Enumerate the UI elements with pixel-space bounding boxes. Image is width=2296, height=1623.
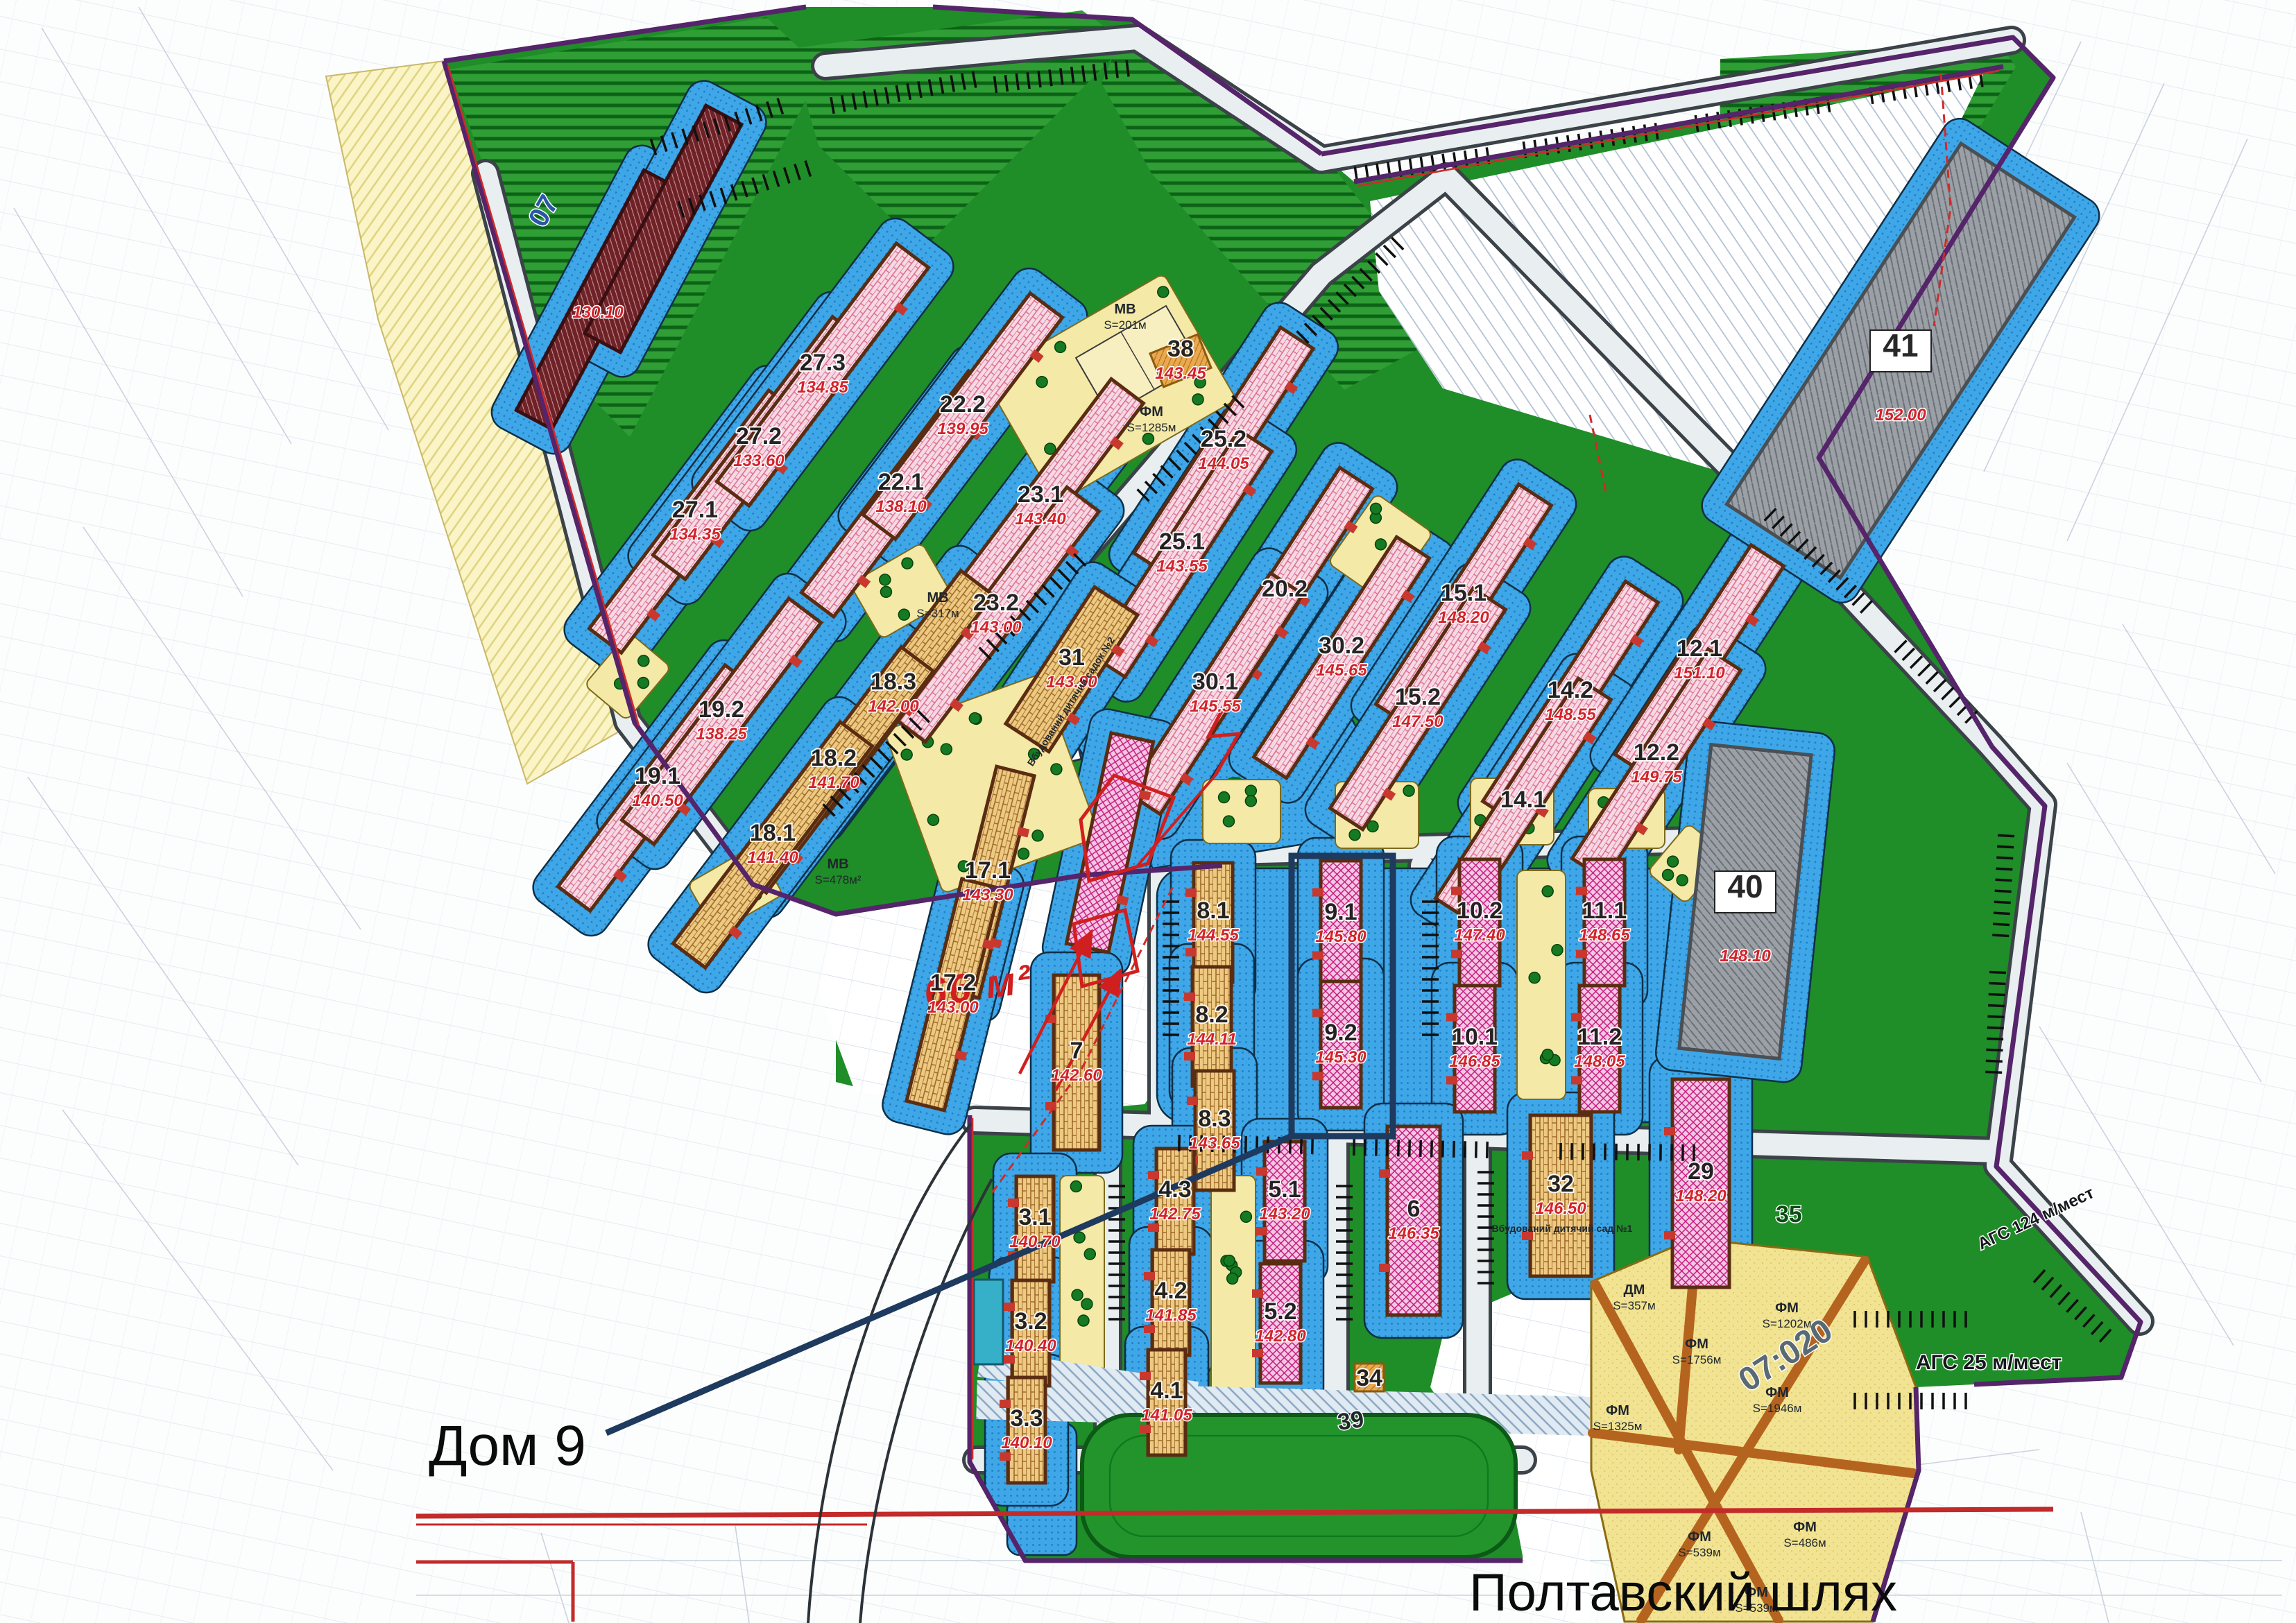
entrance-mark <box>1008 1199 1019 1207</box>
entrance-mark <box>1446 1013 1457 1022</box>
playground <box>1517 870 1566 1099</box>
svg-text:4.1: 4.1 <box>1150 1377 1183 1404</box>
svg-text:134.85: 134.85 <box>797 378 848 397</box>
entrance-mark <box>1571 1013 1582 1022</box>
svg-text:147.50: 147.50 <box>1392 712 1443 731</box>
svg-text:142.75: 142.75 <box>1149 1205 1201 1223</box>
svg-text:3.2: 3.2 <box>1014 1308 1047 1334</box>
svg-text:ФМ: ФМ <box>1793 1520 1817 1535</box>
svg-text:18.3: 18.3 <box>871 669 916 695</box>
building-label-22.1: 22.1138.10 <box>875 469 927 516</box>
svg-text:11.1: 11.1 <box>1582 898 1627 924</box>
svg-text:138.10: 138.10 <box>875 497 927 516</box>
entrance-mark <box>1144 1272 1155 1280</box>
svg-text:S=539м: S=539м <box>1678 1546 1720 1559</box>
svg-text:146.85: 146.85 <box>1449 1052 1500 1071</box>
svg-text:145.30: 145.30 <box>1315 1048 1367 1067</box>
building-label-15.1: 15.1148.20 <box>1438 580 1489 627</box>
building-label-23.2: 23.2143.00 <box>970 590 1022 637</box>
svg-text:145.65: 145.65 <box>1316 661 1367 680</box>
entrance-mark <box>1451 950 1462 959</box>
svg-text:143.20: 143.20 <box>1259 1205 1310 1223</box>
entrance-mark <box>1379 1169 1390 1178</box>
svg-text:27.2: 27.2 <box>736 423 782 449</box>
entrance-mark <box>1148 1223 1159 1232</box>
svg-text:148.55: 148.55 <box>1545 705 1596 724</box>
svg-text:19.2: 19.2 <box>699 696 744 723</box>
entrance-mark <box>1451 887 1462 895</box>
building-label-18.1: 18.1141.40 <box>747 820 798 867</box>
entrance-mark <box>1664 1127 1675 1135</box>
entrance-mark <box>1379 1264 1390 1272</box>
playground <box>1211 1176 1256 1405</box>
entrance-mark <box>1664 1231 1675 1239</box>
svg-text:14.2: 14.2 <box>1548 677 1593 703</box>
entrance-mark <box>1252 1289 1263 1298</box>
entrance-mark <box>1000 1400 1011 1408</box>
svg-text:МВ: МВ <box>927 590 948 606</box>
svg-text:148.05: 148.05 <box>1574 1052 1625 1071</box>
svg-text:17.1: 17.1 <box>965 857 1011 884</box>
svg-text:4.3: 4.3 <box>1158 1176 1191 1203</box>
svg-text:141.70: 141.70 <box>808 773 859 792</box>
entrance-mark <box>1256 1227 1267 1235</box>
svg-text:S=478м²: S=478м² <box>815 873 862 886</box>
svg-text:146.35: 146.35 <box>1388 1224 1439 1243</box>
svg-text:148.10: 148.10 <box>1720 947 1771 965</box>
entrance-mark <box>1045 1102 1056 1110</box>
svg-text:ФМ: ФМ <box>1685 1337 1708 1352</box>
playground <box>1203 780 1280 843</box>
svg-text:32: 32 <box>1548 1171 1574 1197</box>
building-label-18.2: 18.2141.70 <box>808 745 859 792</box>
svg-text:148.65: 148.65 <box>1579 926 1630 945</box>
building-label-12.2: 12.2149.75 <box>1631 739 1682 787</box>
entrance-mark <box>1148 1171 1159 1179</box>
building-label-15.2: 15.2147.50 <box>1392 684 1443 731</box>
svg-text:138.25: 138.25 <box>696 725 747 744</box>
svg-text:ФМ: ФМ <box>1606 1403 1629 1418</box>
svg-text:23.1: 23.1 <box>1018 481 1063 508</box>
svg-text:31: 31 <box>1059 644 1085 671</box>
building-label-19.1: 19.1140.50 <box>632 763 683 810</box>
building-note: Вбудований дитячий сад №1 <box>1492 1223 1633 1234</box>
svg-text:ФМ: ФМ <box>1775 1300 1799 1316</box>
svg-text:18.1: 18.1 <box>750 820 796 846</box>
svg-text:143.00: 143.00 <box>927 998 979 1017</box>
svg-text:27.3: 27.3 <box>800 350 846 376</box>
building-label-30.1: 30.1145.55 <box>1190 669 1241 716</box>
svg-text:22.1: 22.1 <box>878 469 924 495</box>
entrance-mark <box>1256 1167 1267 1176</box>
svg-text:ДМ: ДМ <box>1624 1282 1645 1298</box>
svg-text:142.80: 142.80 <box>1255 1327 1306 1346</box>
svg-text:143.45: 143.45 <box>1155 364 1206 383</box>
svg-text:5.1: 5.1 <box>1268 1176 1301 1203</box>
svg-text:27.1: 27.1 <box>672 497 718 523</box>
entrance-mark <box>1576 887 1587 895</box>
building-label-11.2: 11.2148.05 <box>1574 1024 1625 1071</box>
entrance-mark <box>1576 950 1587 959</box>
svg-text:S=1202м: S=1202м <box>1763 1317 1812 1330</box>
svg-text:12.2: 12.2 <box>1634 739 1679 766</box>
svg-text:151.10: 151.10 <box>1674 664 1725 682</box>
svg-text:3.3: 3.3 <box>1010 1405 1043 1432</box>
entrance-mark <box>1522 1151 1533 1160</box>
map-label: АГС 25 м/мест <box>1916 1351 2062 1374</box>
svg-text:152.00: 152.00 <box>1875 406 1926 424</box>
svg-text:141.85: 141.85 <box>1145 1306 1197 1325</box>
building-label-23.1: 23.1143.40 <box>1015 481 1066 529</box>
svg-text:149.75: 149.75 <box>1631 768 1682 787</box>
svg-text:МВ: МВ <box>827 857 848 872</box>
building-label: 130.10 <box>572 303 624 322</box>
svg-text:8.2: 8.2 <box>1195 1002 1228 1028</box>
svg-text:34: 34 <box>1356 1365 1382 1391</box>
svg-text:ФМ: ФМ <box>1765 1385 1789 1400</box>
svg-text:140.70: 140.70 <box>1009 1233 1061 1251</box>
building-label-14.1: 14.1 <box>1500 787 1546 813</box>
entrance-mark <box>1144 1325 1155 1333</box>
building-label-17.2: 17.2143.00 <box>927 970 979 1017</box>
svg-text:30.1: 30.1 <box>1192 669 1238 695</box>
svg-text:40: 40 <box>1727 868 1763 904</box>
svg-text:9.1: 9.1 <box>1324 899 1357 925</box>
svg-text:140.50: 140.50 <box>632 791 683 810</box>
svg-text:11.2: 11.2 <box>1577 1024 1622 1050</box>
svg-text:142.00: 142.00 <box>868 697 919 716</box>
svg-text:S=1946м: S=1946м <box>1753 1402 1802 1415</box>
building-label-12.1: 12.1151.10 <box>1674 635 1725 682</box>
svg-text:29: 29 <box>1688 1158 1714 1185</box>
svg-text:S=1285м: S=1285м <box>1127 421 1176 434</box>
svg-text:142.60: 142.60 <box>1051 1066 1102 1085</box>
building-label-20.2: 20.2 <box>1262 576 1308 602</box>
building-label-11.1: 11.1148.65 <box>1579 898 1630 945</box>
building-label-27.3: 27.3134.85 <box>797 350 848 397</box>
svg-text:41: 41 <box>1883 327 1918 363</box>
svg-text:140.10: 140.10 <box>1001 1434 1052 1452</box>
svg-text:23.2: 23.2 <box>973 590 1019 616</box>
entrance-mark <box>1184 993 1195 1001</box>
svg-text:8.1: 8.1 <box>1197 898 1229 924</box>
svg-text:143.65: 143.65 <box>1189 1134 1240 1153</box>
entrance-mark <box>1446 1076 1457 1085</box>
dom9-label: Дом 9 <box>429 1414 586 1477</box>
svg-text:146.50: 146.50 <box>1535 1199 1586 1218</box>
svg-text:S=1756м: S=1756м <box>1672 1353 1722 1366</box>
svg-text:133.60: 133.60 <box>733 452 785 470</box>
svg-text:145.55: 145.55 <box>1190 697 1241 716</box>
entrance-mark <box>1000 1452 1011 1461</box>
entrance-mark <box>1312 952 1323 960</box>
svg-text:25.2: 25.2 <box>1201 426 1246 452</box>
svg-text:9.2: 9.2 <box>1324 1020 1357 1046</box>
svg-text:38: 38 <box>1167 336 1194 362</box>
svg-text:144.05: 144.05 <box>1198 454 1249 473</box>
svg-text:S=357м: S=357м <box>1613 1299 1655 1312</box>
map-label: 35 <box>1776 1201 1802 1228</box>
svg-text:20.2: 20.2 <box>1262 576 1308 602</box>
svg-text:141.05: 141.05 <box>1141 1406 1192 1425</box>
entrance-mark <box>1252 1349 1263 1357</box>
building-label-27.1: 27.1134.35 <box>669 497 721 544</box>
entrance-mark <box>1185 888 1197 897</box>
svg-text:ФМ: ФМ <box>1140 404 1163 420</box>
svg-text:140.40: 140.40 <box>1005 1337 1056 1355</box>
svg-text:3.1: 3.1 <box>1018 1204 1051 1230</box>
svg-text:15.1: 15.1 <box>1441 580 1487 606</box>
building-label-10.1: 10.1146.85 <box>1449 1024 1500 1071</box>
svg-text:143.00: 143.00 <box>970 618 1022 637</box>
building-label-19.2: 19.2138.25 <box>696 696 747 744</box>
entrance-mark <box>1312 1009 1323 1017</box>
svg-text:МВ: МВ <box>1114 302 1136 317</box>
entrance-mark <box>1140 1372 1151 1380</box>
entrance-mark <box>1004 1355 1015 1364</box>
svg-text:145.80: 145.80 <box>1315 927 1367 946</box>
entrance-mark <box>1185 948 1197 956</box>
svg-text:S=317м: S=317м <box>916 607 959 620</box>
svg-text:12.1: 12.1 <box>1677 635 1722 662</box>
entrance-mark <box>1312 888 1323 897</box>
svg-text:147.40: 147.40 <box>1454 926 1505 945</box>
svg-text:ФМ: ФМ <box>1688 1529 1711 1545</box>
svg-text:25.1: 25.1 <box>1159 529 1205 555</box>
svg-text:134.35: 134.35 <box>669 525 721 544</box>
svg-text:17.2: 17.2 <box>930 970 976 996</box>
entrance-mark <box>1184 1052 1195 1060</box>
building-label-30.2: 30.2145.65 <box>1316 633 1367 680</box>
svg-text:7: 7 <box>1070 1038 1083 1064</box>
building-label-10.2: 10.2147.40 <box>1454 898 1505 945</box>
pool-building <box>974 1280 1003 1364</box>
street-label: Полтавский шлях <box>1469 1563 1897 1622</box>
svg-text:141.40: 141.40 <box>747 848 798 867</box>
svg-text:143.40: 143.40 <box>1015 510 1066 529</box>
svg-text:4.2: 4.2 <box>1154 1278 1187 1304</box>
svg-text:5.2: 5.2 <box>1264 1298 1296 1325</box>
entrance-mark <box>1312 1072 1323 1081</box>
svg-text:144.55: 144.55 <box>1188 926 1239 945</box>
svg-text:18.2: 18.2 <box>811 745 857 771</box>
svg-text:8.3: 8.3 <box>1198 1106 1231 1132</box>
building-label-34: 34 <box>1356 1365 1382 1391</box>
svg-text:10.1: 10.1 <box>1452 1024 1498 1050</box>
svg-text:22.2: 22.2 <box>940 391 986 418</box>
building-label-22.2: 22.2139.95 <box>937 391 988 438</box>
site-plan-map: 66 м² 130.1027.1134.3527.2133.6027.3134.… <box>0 0 2296 1623</box>
svg-text:15.2: 15.2 <box>1395 684 1441 710</box>
svg-text:S=1325м: S=1325м <box>1593 1420 1643 1433</box>
entrance-mark <box>1140 1425 1151 1433</box>
svg-text:144.11: 144.11 <box>1187 1030 1237 1049</box>
svg-text:148.20: 148.20 <box>1675 1187 1727 1205</box>
svg-text:14.1: 14.1 <box>1500 787 1546 813</box>
building-label-14.2: 14.2148.55 <box>1545 677 1596 724</box>
building-label-27.2: 27.2133.60 <box>733 423 785 470</box>
svg-text:139.95: 139.95 <box>937 420 988 438</box>
svg-text:30.2: 30.2 <box>1319 633 1364 659</box>
entrance-mark <box>1004 1303 1015 1311</box>
svg-text:S=486м: S=486м <box>1783 1536 1826 1549</box>
svg-text:S=201м: S=201м <box>1104 318 1146 332</box>
svg-text:10.2: 10.2 <box>1457 898 1502 924</box>
svg-text:148.20: 148.20 <box>1438 608 1489 627</box>
svg-text:143.30: 143.30 <box>962 886 1013 904</box>
svg-text:6: 6 <box>1407 1196 1421 1222</box>
entrance-mark <box>1571 1076 1582 1085</box>
map-label: 39 <box>1336 1406 1366 1436</box>
building-label-18.3: 18.3142.00 <box>868 669 919 716</box>
entrance-mark <box>1187 1097 1198 1105</box>
building-label-17.1: 17.1143.30 <box>962 857 1013 904</box>
svg-text:143.55: 143.55 <box>1156 557 1208 576</box>
svg-text:19.1: 19.1 <box>635 763 680 789</box>
svg-text:130.10: 130.10 <box>572 303 624 322</box>
building-label-25.2: 25.2144.05 <box>1198 426 1249 473</box>
building-label-25.1: 25.1143.55 <box>1156 529 1208 576</box>
